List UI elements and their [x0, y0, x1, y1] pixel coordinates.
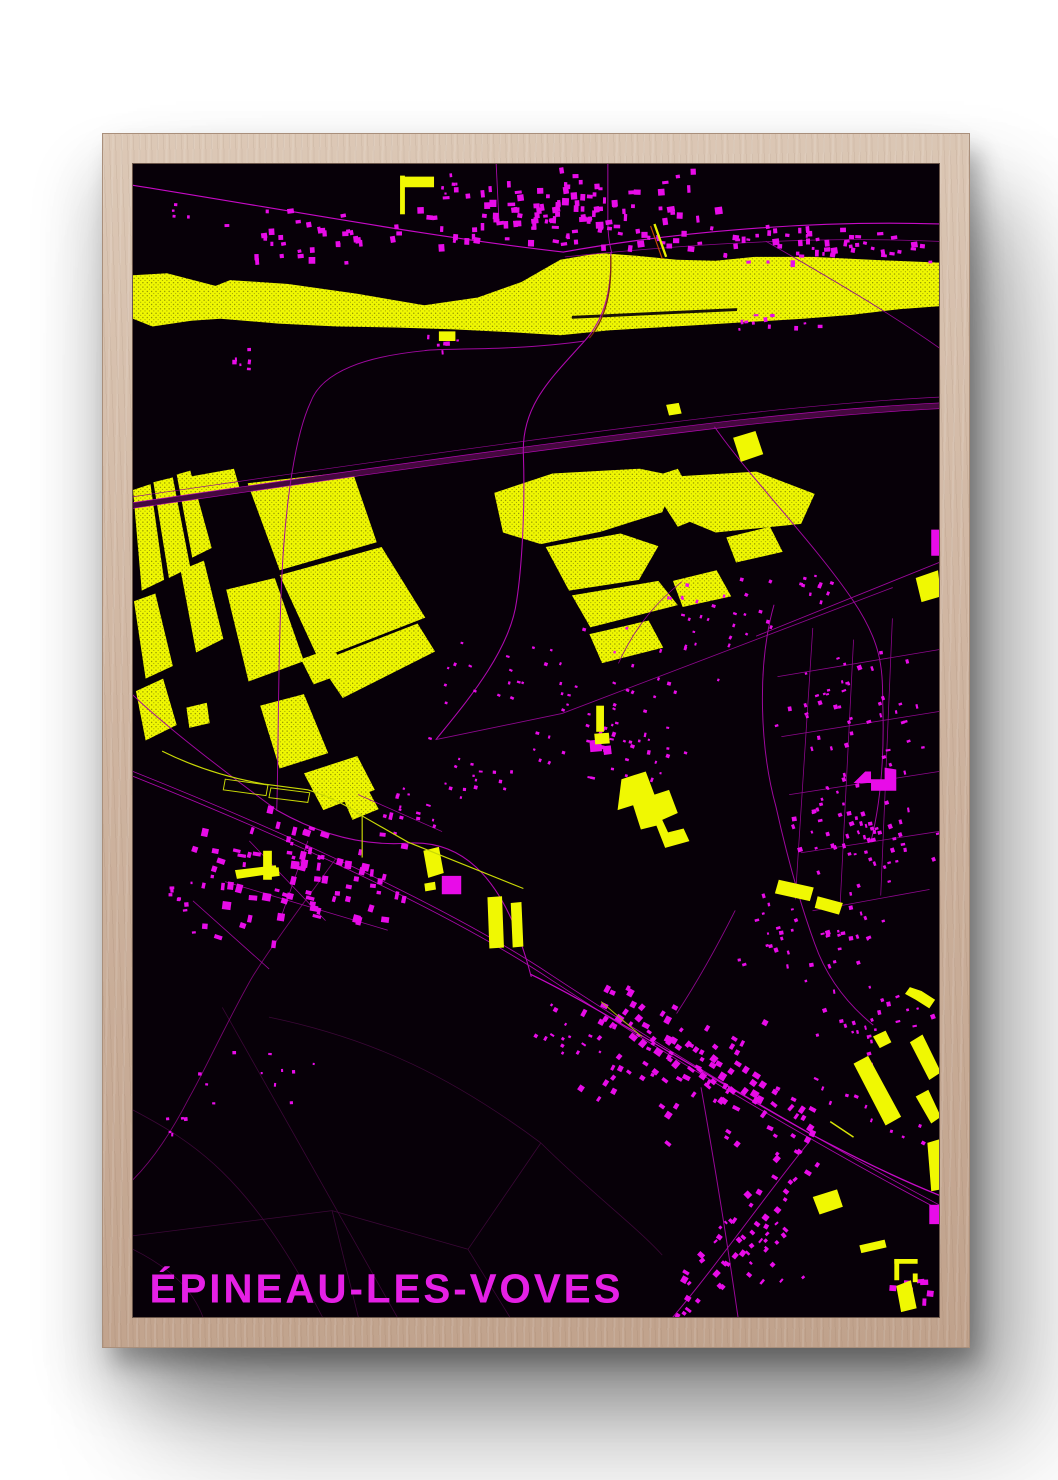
city-map-graphic: ÉPINEAU-LES-VOVES — [133, 164, 939, 1317]
map-poster: ÉPINEAU-LES-VOVES — [133, 164, 939, 1317]
page-background: ÉPINEAU-LES-VOVES — [0, 0, 1058, 1480]
picture-frame: ÉPINEAU-LES-VOVES — [103, 134, 969, 1347]
poster-background — [133, 164, 939, 1317]
map-title: ÉPINEAU-LES-VOVES — [150, 1266, 624, 1312]
